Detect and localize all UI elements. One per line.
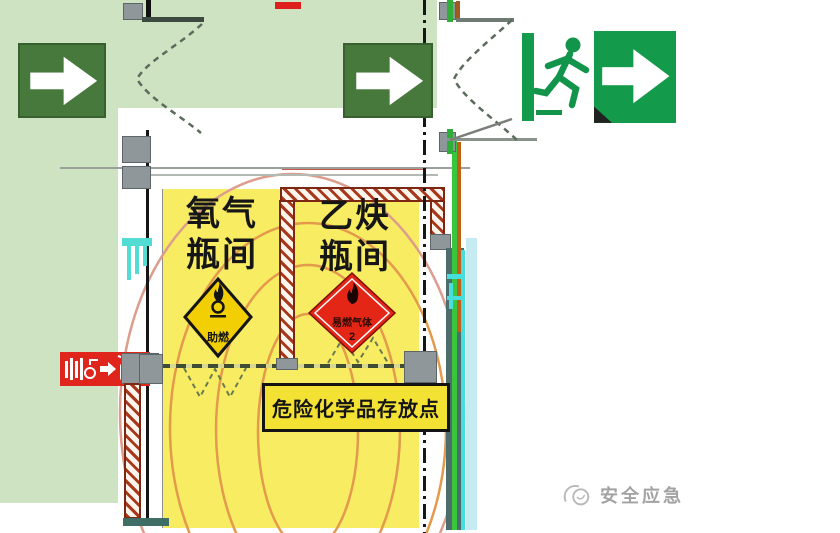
oxygen-room-line1: 氧气 bbox=[164, 194, 280, 235]
exit-door-green-post-top bbox=[447, 0, 453, 22]
exit-door-green-post-bottom bbox=[447, 129, 453, 154]
evacuation-plan-canvas: 助燃 易燃气体 2 氧气 瓶间 乙炔 瓶间 危险化学品存放点 bbox=[0, 0, 840, 533]
left-window-block-1 bbox=[122, 136, 151, 163]
exit-arrow-icon bbox=[345, 45, 431, 116]
acetylene-room-label: 乙炔 瓶间 bbox=[296, 196, 414, 278]
pipe-tag-mark-1 bbox=[447, 274, 465, 279]
grid-line-b bbox=[128, 174, 438, 176]
exit-threshold-line bbox=[447, 138, 537, 141]
pipe-tag-mark-3 bbox=[447, 296, 465, 300]
storage-point-text: 危险化学品存放点 bbox=[272, 393, 440, 422]
top-door-leaf-bar bbox=[142, 17, 204, 22]
left-wall-footer bbox=[123, 518, 169, 526]
light-cyan-band bbox=[466, 238, 477, 530]
exit-door-brown-tick bbox=[456, 1, 460, 19]
watermark-text: 安全应急 bbox=[600, 482, 684, 508]
pipe-valve-icon bbox=[122, 236, 156, 282]
valve-bar bbox=[122, 238, 152, 246]
exit-arrow-sign-1 bbox=[18, 43, 106, 118]
valve-stem-2 bbox=[135, 246, 139, 274]
watermark: 安全应急 bbox=[560, 479, 684, 511]
door-leaf-diagonal bbox=[450, 119, 512, 140]
storage-point-label: 危险化学品存放点 bbox=[262, 383, 450, 432]
bottom-wall-pillar-right bbox=[404, 351, 437, 383]
exit-arrow-sign-2 bbox=[343, 43, 433, 118]
bottom-wall-pillar-left bbox=[139, 354, 163, 384]
valve-stem-3 bbox=[143, 246, 147, 266]
running-man-exit-icon bbox=[534, 34, 596, 120]
oxygen-room-label: 氧气 瓶间 bbox=[164, 194, 280, 276]
exit-arrow-icon bbox=[20, 45, 104, 116]
left-hatched-wall bbox=[124, 383, 141, 519]
room-divider-hatched-wall bbox=[279, 200, 295, 368]
exit-arrow-icon bbox=[594, 31, 676, 123]
acetylene-room-line2: 瓶间 bbox=[296, 237, 414, 278]
watermark-logo-icon bbox=[560, 479, 594, 511]
cyan-pipe-line bbox=[461, 250, 465, 530]
valve-stem-1 bbox=[127, 246, 131, 280]
top-door-block-left bbox=[123, 3, 143, 20]
exit-door-bar bbox=[522, 33, 534, 121]
left-window-block-2 bbox=[122, 166, 151, 189]
top-red-marker bbox=[275, 2, 301, 9]
grid-line-red bbox=[282, 169, 425, 170]
door-swing-right bbox=[454, 20, 518, 141]
divider-foot-block bbox=[276, 358, 298, 370]
exit-square-sign bbox=[594, 31, 676, 123]
exit-door-leaf-bar bbox=[456, 18, 514, 22]
acetylene-room-line1: 乙炔 bbox=[296, 196, 414, 237]
oxygen-room-line2: 瓶间 bbox=[164, 235, 280, 276]
